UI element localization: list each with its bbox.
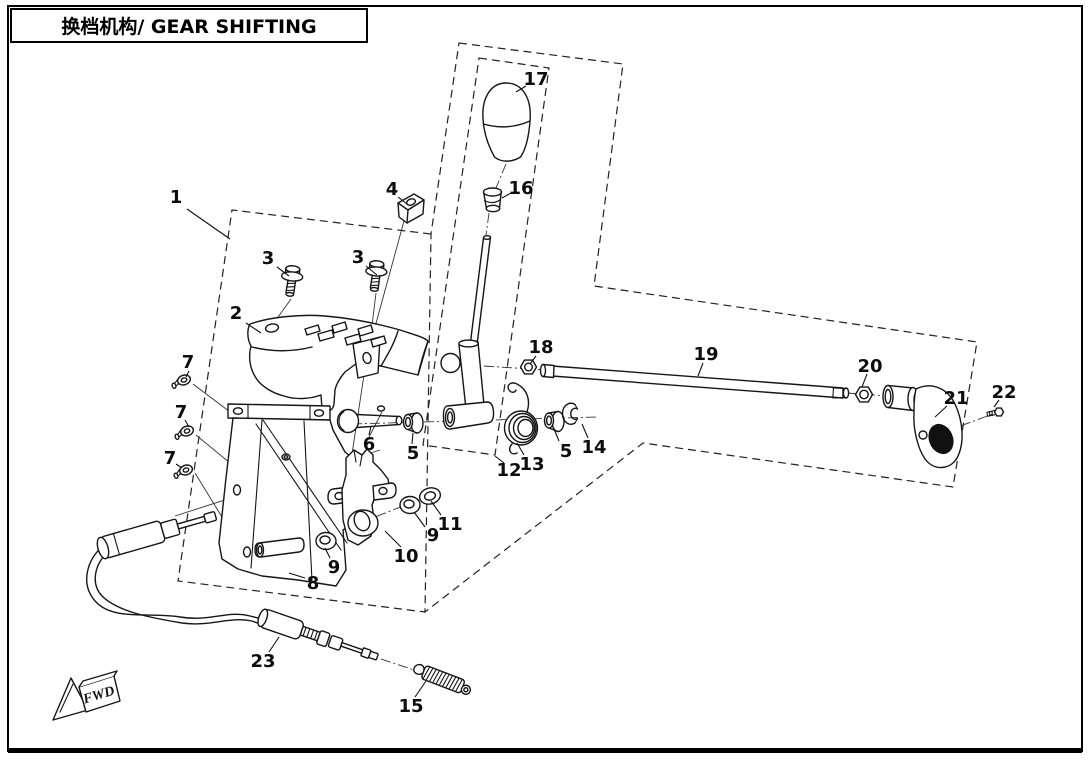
callout-12: 12 [496, 460, 521, 481]
callout-21: 21 [943, 388, 968, 409]
callout-5: 5 [560, 441, 573, 462]
screw-top [170, 373, 192, 388]
screw-middle [173, 424, 195, 439]
clip-nut [398, 194, 424, 223]
washer-bushing-left [316, 533, 336, 550]
callout-20: 20 [857, 356, 882, 377]
diagram-canvas: FWD 123347776512135141819202122161789109… [0, 0, 1090, 760]
e-clip [562, 403, 577, 424]
callout-3: 3 [262, 248, 275, 269]
fwd-arrow: FWD [53, 671, 120, 720]
callout-10: 10 [393, 546, 418, 567]
bushing-right [545, 412, 565, 432]
callout-leader-15 [415, 681, 426, 697]
flange-nut [521, 360, 537, 374]
torsion-spring [505, 383, 538, 454]
callout-2: 2 [230, 303, 243, 324]
callout-leader-23 [269, 637, 279, 652]
callout-leader-7 [176, 464, 182, 468]
callout-1: 1 [170, 187, 183, 208]
callout-7: 7 [164, 448, 177, 469]
callout-leader-1 [187, 209, 230, 239]
small-bolt [987, 408, 1004, 416]
callout-leader-11 [431, 501, 441, 515]
callout-leader-10 [385, 531, 401, 547]
callout-22: 22 [991, 382, 1016, 403]
callout-7: 7 [182, 352, 195, 373]
page-border [8, 6, 1082, 751]
shift-gate-plate [248, 315, 428, 411]
callout-18: 18 [528, 337, 553, 358]
callout-leader-14 [582, 424, 588, 438]
callout-6: 6 [363, 434, 376, 455]
callout-4: 4 [386, 179, 399, 200]
callout-9: 9 [328, 557, 341, 578]
callout-16: 16 [508, 178, 533, 199]
callout-3: 3 [352, 247, 365, 268]
callout-23: 23 [250, 651, 275, 672]
callout-15: 15 [398, 696, 423, 717]
callout-8: 8 [307, 573, 320, 594]
flange-bolt-left [280, 265, 304, 297]
callout-14: 14 [581, 437, 606, 458]
lock-nut [856, 387, 873, 402]
callout-19: 19 [693, 344, 718, 365]
callout-13: 13 [519, 454, 544, 475]
clevis-pin [338, 410, 402, 433]
title-block: 换档机构/ GEAR SHIFTING [10, 8, 368, 43]
flange-bolt-right [364, 260, 387, 292]
callout-5: 5 [407, 443, 420, 464]
bushing-left [404, 413, 424, 433]
washer-bushing-right [400, 497, 420, 514]
page-title: 换档机构/ GEAR SHIFTING [61, 12, 316, 39]
callout-7: 7 [175, 402, 188, 423]
parts-diagram-page: 换档机构/ GEAR SHIFTING [0, 0, 1090, 760]
knob-cap [484, 188, 502, 212]
tension-spring [412, 662, 473, 697]
callout-leader-9 [414, 512, 425, 527]
shift-knob [483, 83, 530, 161]
callout-17: 17 [523, 69, 548, 90]
shift-rod [541, 365, 849, 399]
callout-11: 11 [437, 514, 462, 535]
flat-washer [418, 486, 442, 507]
